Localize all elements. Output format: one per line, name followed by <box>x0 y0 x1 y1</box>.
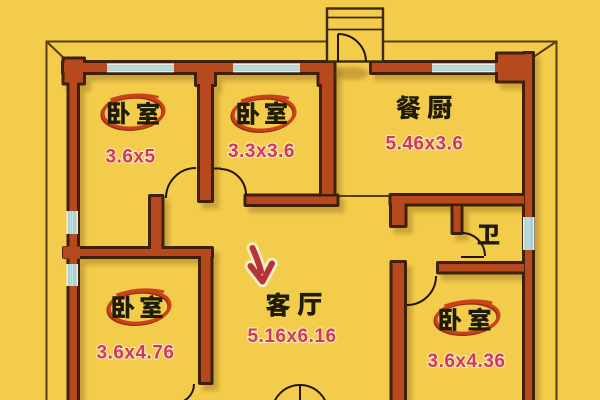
svg-text:5.46x3.6: 5.46x3.6 <box>386 134 464 155</box>
svg-text:3.6x5: 3.6x5 <box>105 147 155 168</box>
svg-text:3.3x3.6: 3.3x3.6 <box>228 141 295 162</box>
svg-text:3.6x4.76: 3.6x4.76 <box>97 343 175 364</box>
svg-text:3.6x4.36: 3.6x4.36 <box>428 351 506 372</box>
svg-text:5.16x6.16: 5.16x6.16 <box>247 326 336 347</box>
